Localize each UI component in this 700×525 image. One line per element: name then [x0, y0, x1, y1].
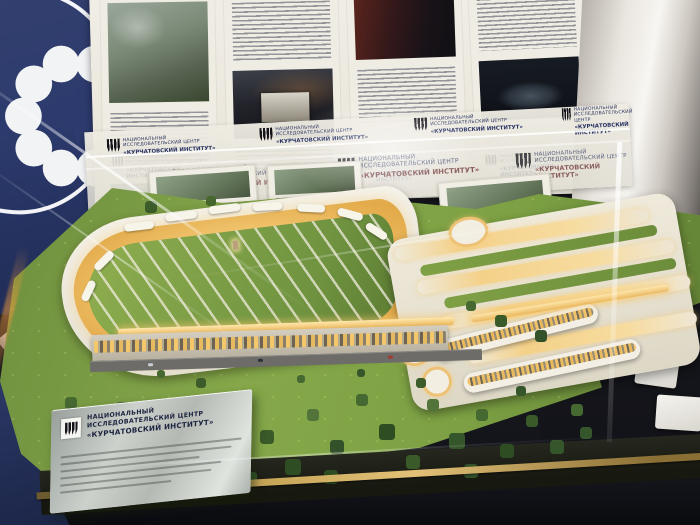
kurchatov-tree-icon: [259, 127, 273, 141]
kurchatov-tree-icon: [107, 138, 121, 152]
kurchatov-tree-icon: [515, 153, 531, 169]
poster-1-render-photo: [107, 1, 209, 103]
kurchatov-tree-icon: [562, 108, 572, 121]
photo-architectural-model-display: НАЦИОНАЛЬНЫЙ ИССЛЕДОВАТЕЛЬСКИЙ ЦЕНТР «КУ…: [0, 0, 700, 525]
plaque-heading: НАЦИОНАЛЬНЫЙ ИССЛЕДОВАТЕЛЬСКИЙ ЦЕНТР «КУ…: [87, 398, 247, 440]
facade-windows: [94, 331, 446, 353]
model-car: [148, 363, 153, 366]
trees-front: [0, 0, 2, 2]
plaque-logo-chip: [61, 417, 81, 439]
poster-3-interior-photo: [353, 0, 455, 60]
poster-4-text: [477, 0, 577, 51]
background-model-box-2: [655, 394, 700, 431]
roof-pavilion: [252, 202, 282, 212]
poster-2-text: [231, 1, 330, 61]
glass-glare-haze: [290, 95, 490, 205]
courtyard-statue: [233, 240, 239, 250]
model-plaque: НАЦИОНАЛЬНЫЙ ИССЛЕДОВАТЕЛЬСКИЙ ЦЕНТР «КУ…: [50, 389, 253, 514]
model-car: [388, 356, 393, 359]
kurchatov-tree-icon: [64, 421, 77, 435]
